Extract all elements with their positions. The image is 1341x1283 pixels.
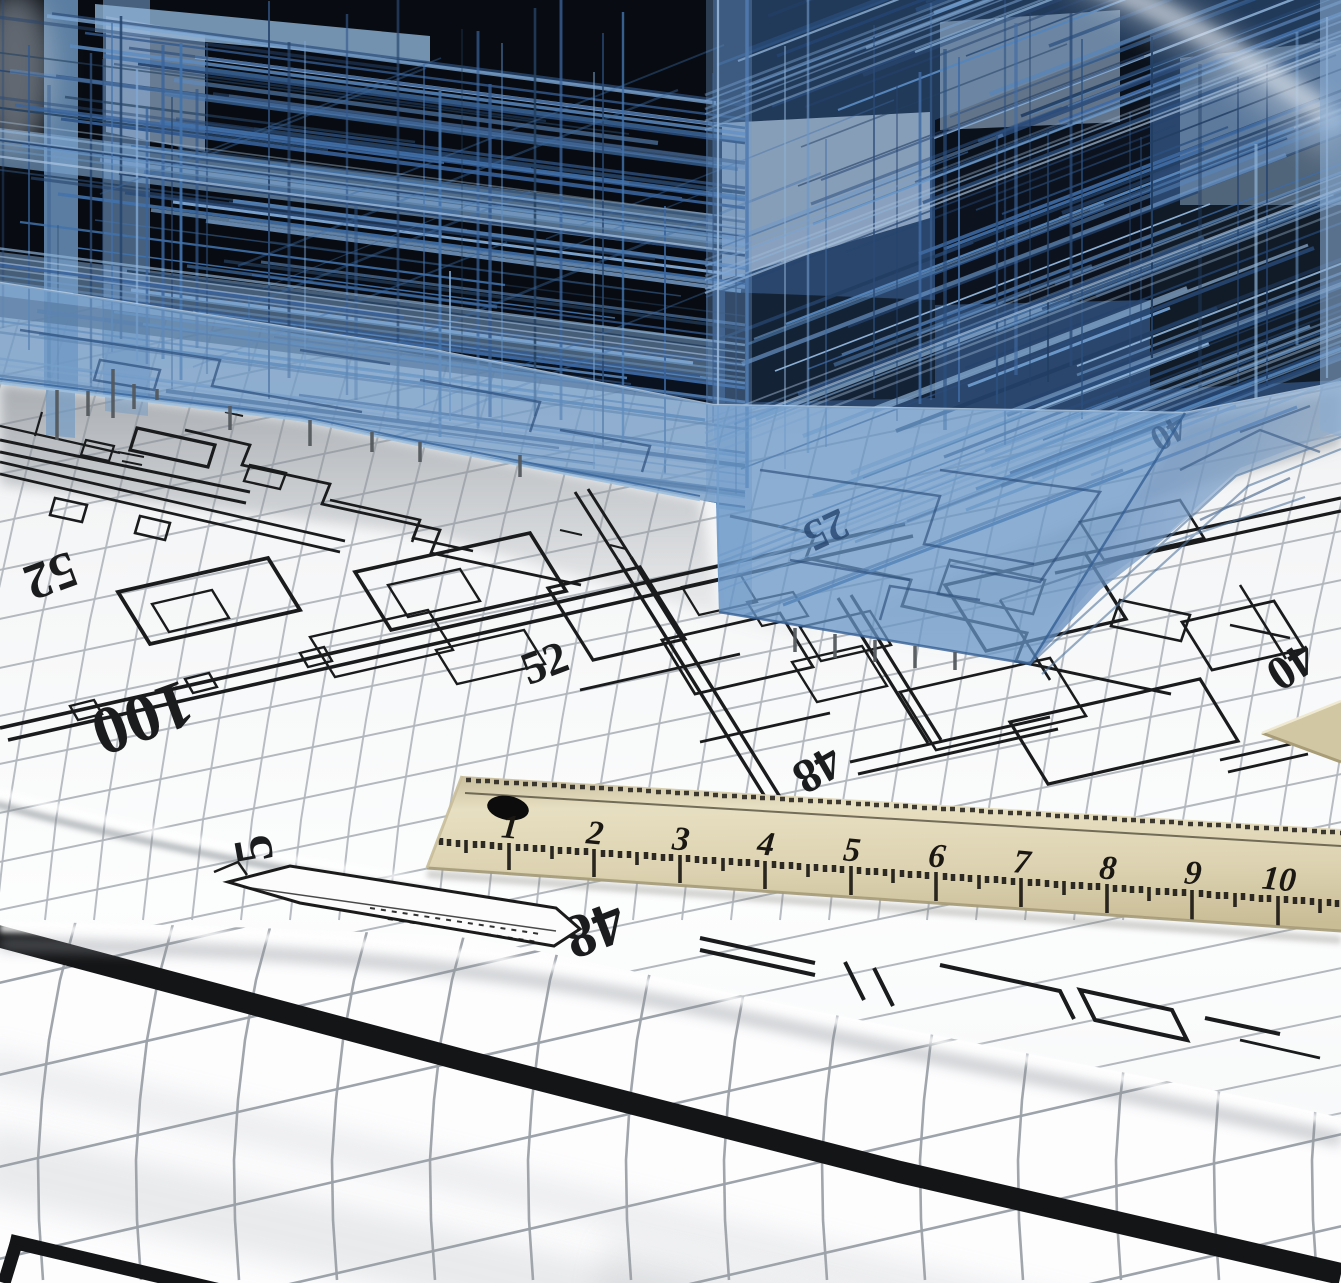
- svg-text:9: 9: [1183, 854, 1203, 892]
- svg-text:10: 10: [1260, 860, 1297, 900]
- svg-text:4: 4: [755, 825, 776, 864]
- svg-text:6: 6: [927, 837, 947, 875]
- svg-text:1: 1: [500, 808, 520, 846]
- svg-text:2: 2: [584, 814, 605, 853]
- svg-text:3: 3: [670, 820, 691, 859]
- svg-text:8: 8: [1098, 849, 1118, 887]
- svg-text:5: 5: [842, 831, 862, 869]
